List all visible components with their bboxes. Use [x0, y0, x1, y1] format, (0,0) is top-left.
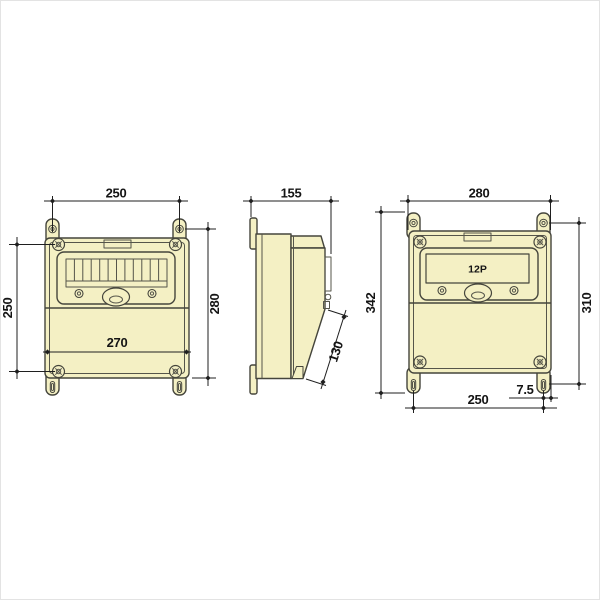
front-left-view: 250 250 280 270 — [1, 186, 222, 396]
technical-drawing: 250 250 280 270 — [1, 1, 599, 599]
dim-label-bottom-width: 250 — [468, 392, 489, 407]
dim-label-cover-slope: 130 — [325, 339, 346, 363]
corner-screw-icon — [534, 356, 546, 368]
latch-icon — [103, 288, 130, 306]
corner-screw-icon — [170, 366, 182, 378]
side-cover-sloped — [291, 248, 325, 379]
dim-label-left-height: 250 — [1, 298, 15, 319]
dim-label-depth: 155 — [281, 186, 302, 201]
dim-label-inner-width: 270 — [107, 335, 128, 350]
dim-label-top-width: 280 — [469, 186, 490, 201]
corner-screw-icon — [414, 236, 426, 248]
drawing-page: 250 250 280 270 — [0, 0, 600, 600]
dim-overall-height — [375, 206, 405, 399]
side-view: 155 130 — [243, 186, 348, 395]
corner-screw-icon — [414, 356, 426, 368]
side-base-body — [256, 234, 291, 379]
front-right-view: 12P 280 342 310 — [363, 186, 594, 414]
side-cover-rim — [291, 236, 325, 248]
cover-12p-label: 12P — [468, 264, 487, 276]
dim-label-hole-height: 310 — [579, 293, 594, 314]
latch-icon — [465, 284, 492, 302]
dim-label-hole-offset: 7.5 — [516, 382, 533, 397]
dim-front-left-top-width — [44, 196, 188, 232]
corner-screw-icon — [170, 239, 182, 251]
dim-label-top-width: 250 — [106, 186, 127, 201]
dim-label-overall-height: 342 — [363, 293, 378, 314]
corner-screw-icon — [534, 236, 546, 248]
dim-label-right-height: 280 — [207, 294, 222, 315]
